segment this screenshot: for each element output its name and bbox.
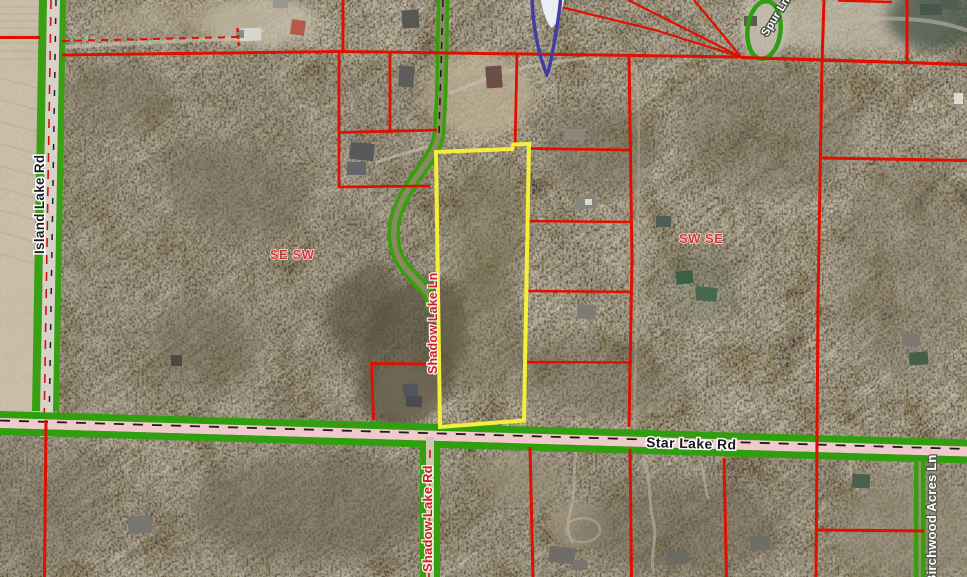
svg-text:Shadow Lake Ln: Shadow Lake Ln (426, 273, 440, 374)
svg-text:SW SE: SW SE (679, 231, 723, 246)
svg-text:SE SW: SE SW (270, 247, 315, 262)
svg-text:Island Lake Rd: Island Lake Rd (32, 155, 47, 254)
svg-text:Birchwood Acres Ln: Birchwood Acres Ln (924, 454, 939, 577)
svg-text:Star Lake Rd: Star Lake Rd (646, 434, 737, 453)
svg-text:Shadow Lake Rd: Shadow Lake Rd (420, 465, 435, 572)
